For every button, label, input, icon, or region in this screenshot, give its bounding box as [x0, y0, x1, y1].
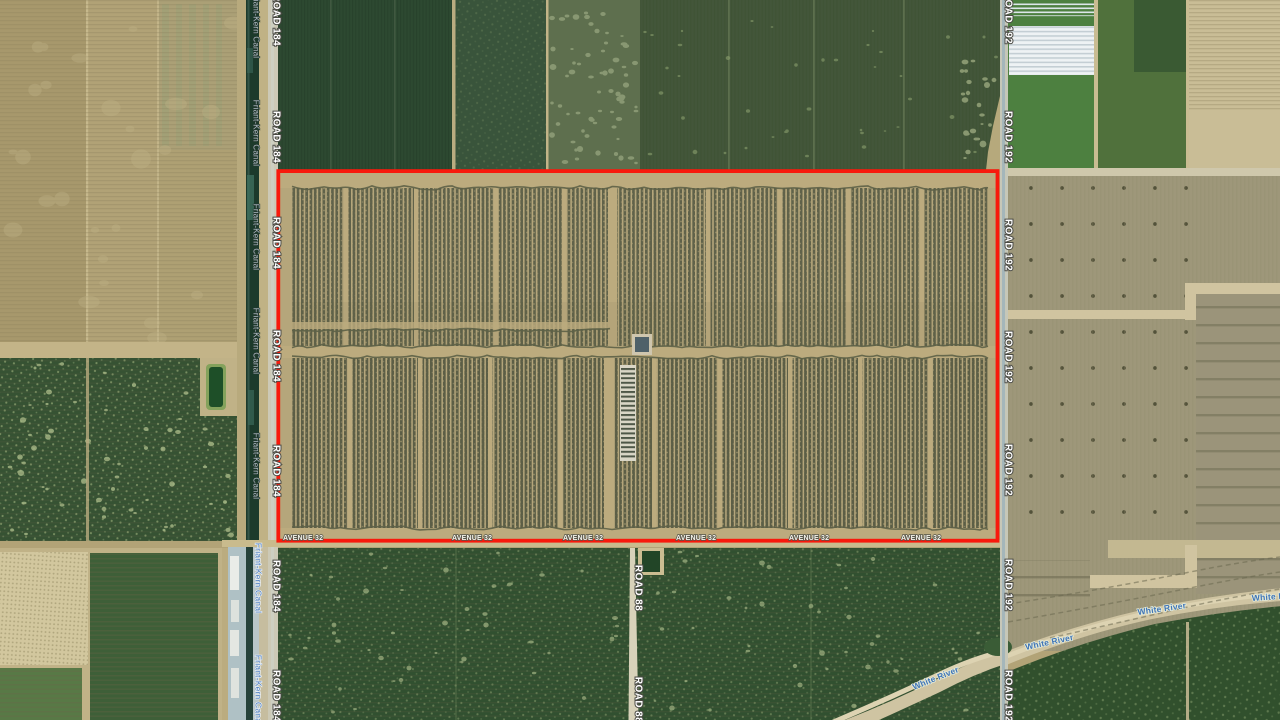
svg-text:ROAD 88: ROAD 88	[633, 677, 644, 720]
svg-text:AVENUE 32: AVENUE 32	[676, 535, 716, 542]
svg-text:Friant-Kern Canal: Friant-Kern Canal	[252, 204, 261, 271]
svg-text:ROAD 192: ROAD 192	[1003, 111, 1014, 163]
svg-text:ROAD 184: ROAD 184	[271, 445, 282, 497]
svg-text:ROAD 184: ROAD 184	[271, 217, 282, 269]
svg-text:ROAD 184: ROAD 184	[271, 670, 282, 720]
svg-text:ROAD 184: ROAD 184	[271, 560, 282, 612]
svg-text:AVENUE 32: AVENUE 32	[563, 535, 603, 542]
svg-text:ROAD 184: ROAD 184	[271, 0, 282, 46]
svg-text:Friant-Kern Canal: Friant-Kern Canal	[254, 543, 264, 613]
svg-text:Friant-Kern Canal: Friant-Kern Canal	[252, 100, 261, 167]
svg-text:ROAD 88: ROAD 88	[633, 565, 644, 611]
svg-text:AVENUE 32: AVENUE 32	[283, 535, 323, 542]
svg-text:ROAD 192: ROAD 192	[1003, 444, 1014, 496]
svg-text:AVENUE 32: AVENUE 32	[901, 535, 941, 542]
svg-text:Friant-Kern Canal: Friant-Kern Canal	[252, 308, 261, 375]
svg-text:Friant-Kern Canal: Friant-Kern Canal	[252, 0, 261, 58]
svg-text:ROAD 184: ROAD 184	[271, 330, 282, 382]
svg-text:AVENUE 32: AVENUE 32	[452, 535, 492, 542]
svg-text:ROAD 192: ROAD 192	[1003, 0, 1014, 44]
svg-text:ROAD 192: ROAD 192	[1003, 559, 1014, 611]
svg-text:ROAD 192: ROAD 192	[1003, 670, 1014, 720]
svg-text:ROAD 192: ROAD 192	[1003, 331, 1014, 383]
svg-text:Friant-Kern Canal: Friant-Kern Canal	[252, 433, 261, 500]
svg-text:AVENUE 32: AVENUE 32	[789, 535, 829, 542]
svg-text:ROAD 192: ROAD 192	[1003, 219, 1014, 271]
svg-text:ROAD 184: ROAD 184	[271, 111, 282, 163]
svg-text:Friant-Kern Canal: Friant-Kern Canal	[254, 655, 264, 720]
